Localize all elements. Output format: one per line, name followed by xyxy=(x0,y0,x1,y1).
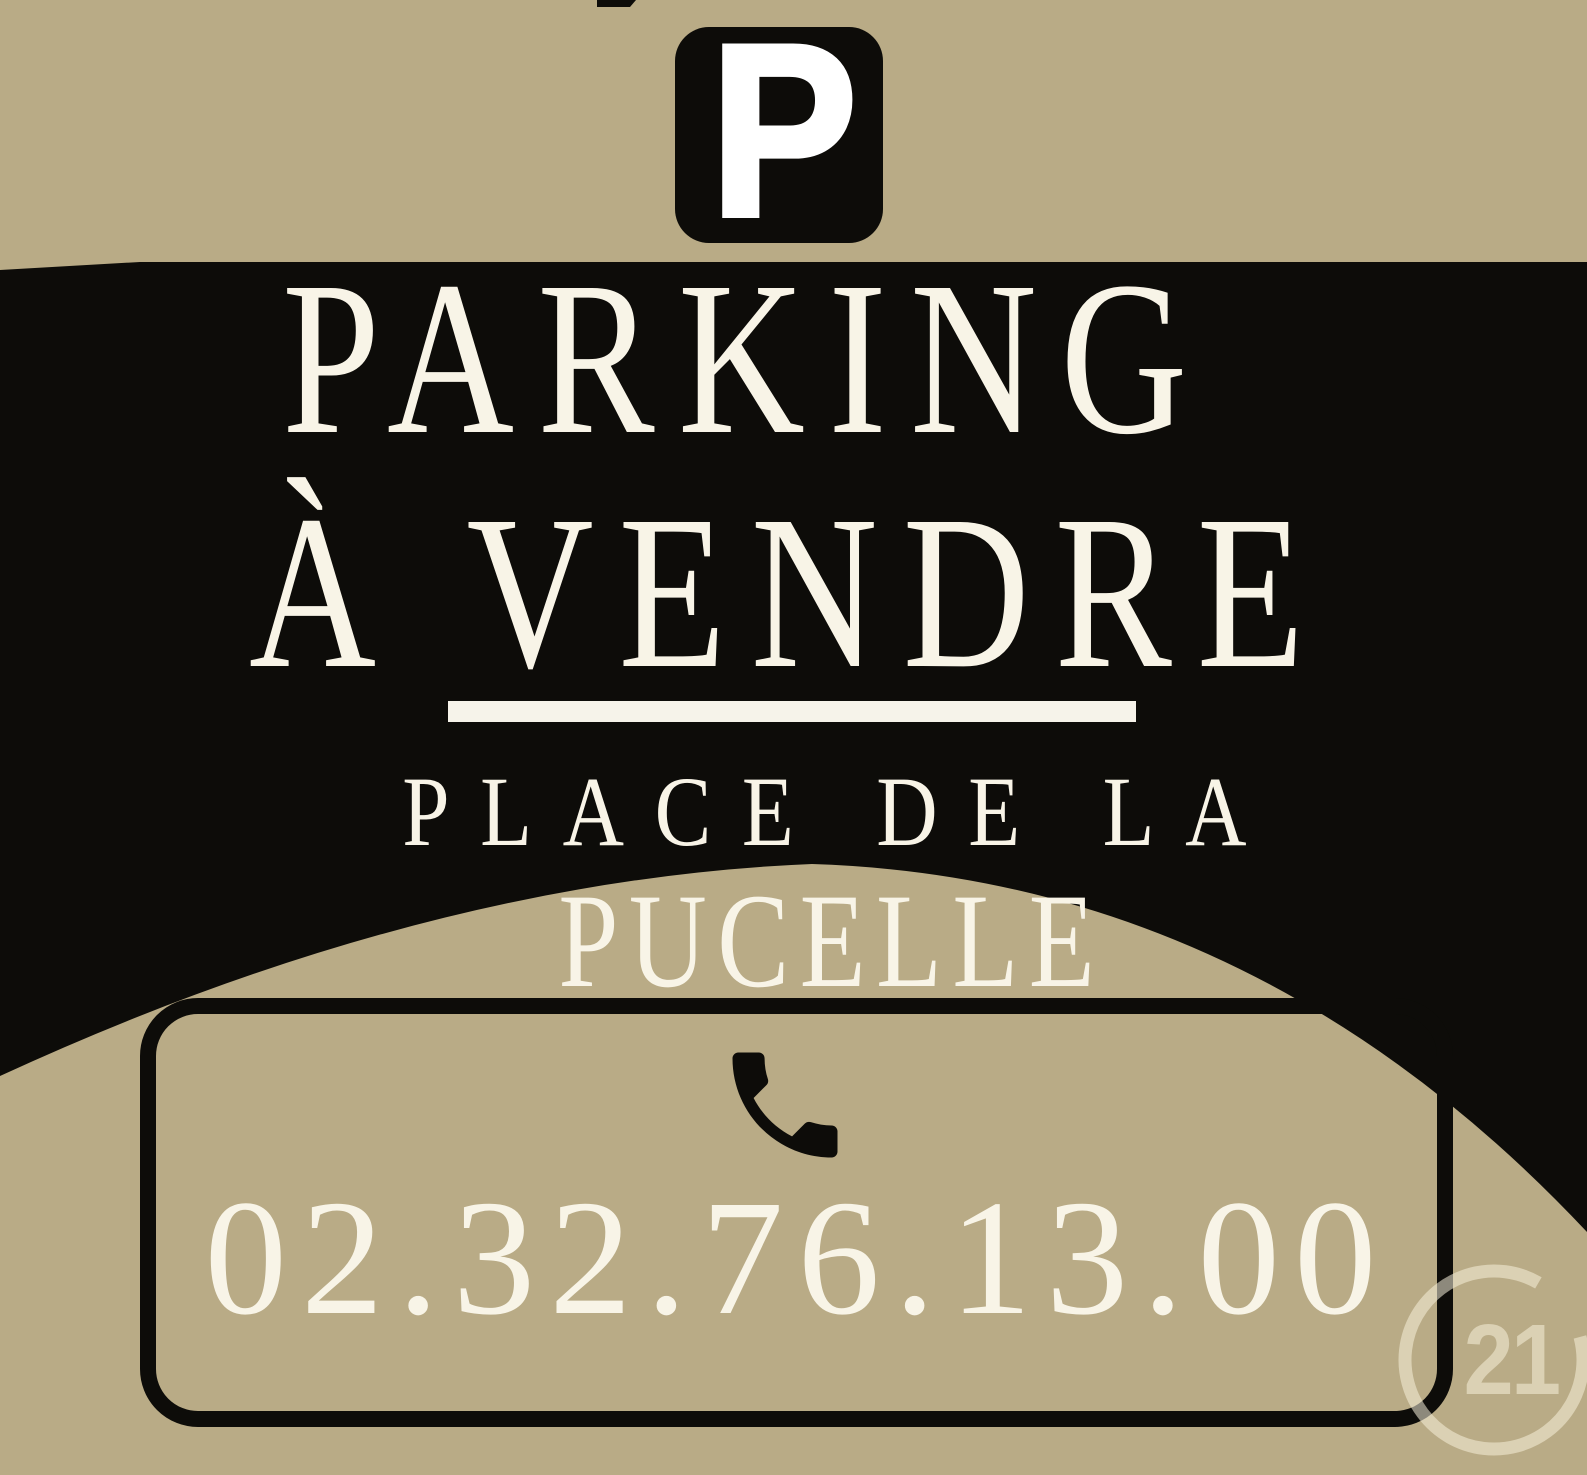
poster: P PARKING À VENDRE PLACE DE LA PUCELLE 0… xyxy=(0,0,1587,1475)
location-line-1: PLACE DE LA xyxy=(0,762,1587,862)
parking-p-letter: P xyxy=(710,8,857,253)
parking-p-icon: P xyxy=(675,27,883,243)
phone-number: 02.32.76.13.00 xyxy=(0,1175,1587,1340)
location-line-2: PUCELLE xyxy=(0,874,1587,1009)
title-line-2: À VENDRE xyxy=(0,482,1587,702)
top-edge-sliver xyxy=(597,0,636,7)
title-underline xyxy=(448,701,1136,722)
century21-logo: 21 xyxy=(1393,1256,1587,1471)
phone-icon xyxy=(715,1035,855,1175)
century21-number: 21 xyxy=(1464,1305,1560,1416)
title-line-1: PARKING xyxy=(0,248,1587,468)
